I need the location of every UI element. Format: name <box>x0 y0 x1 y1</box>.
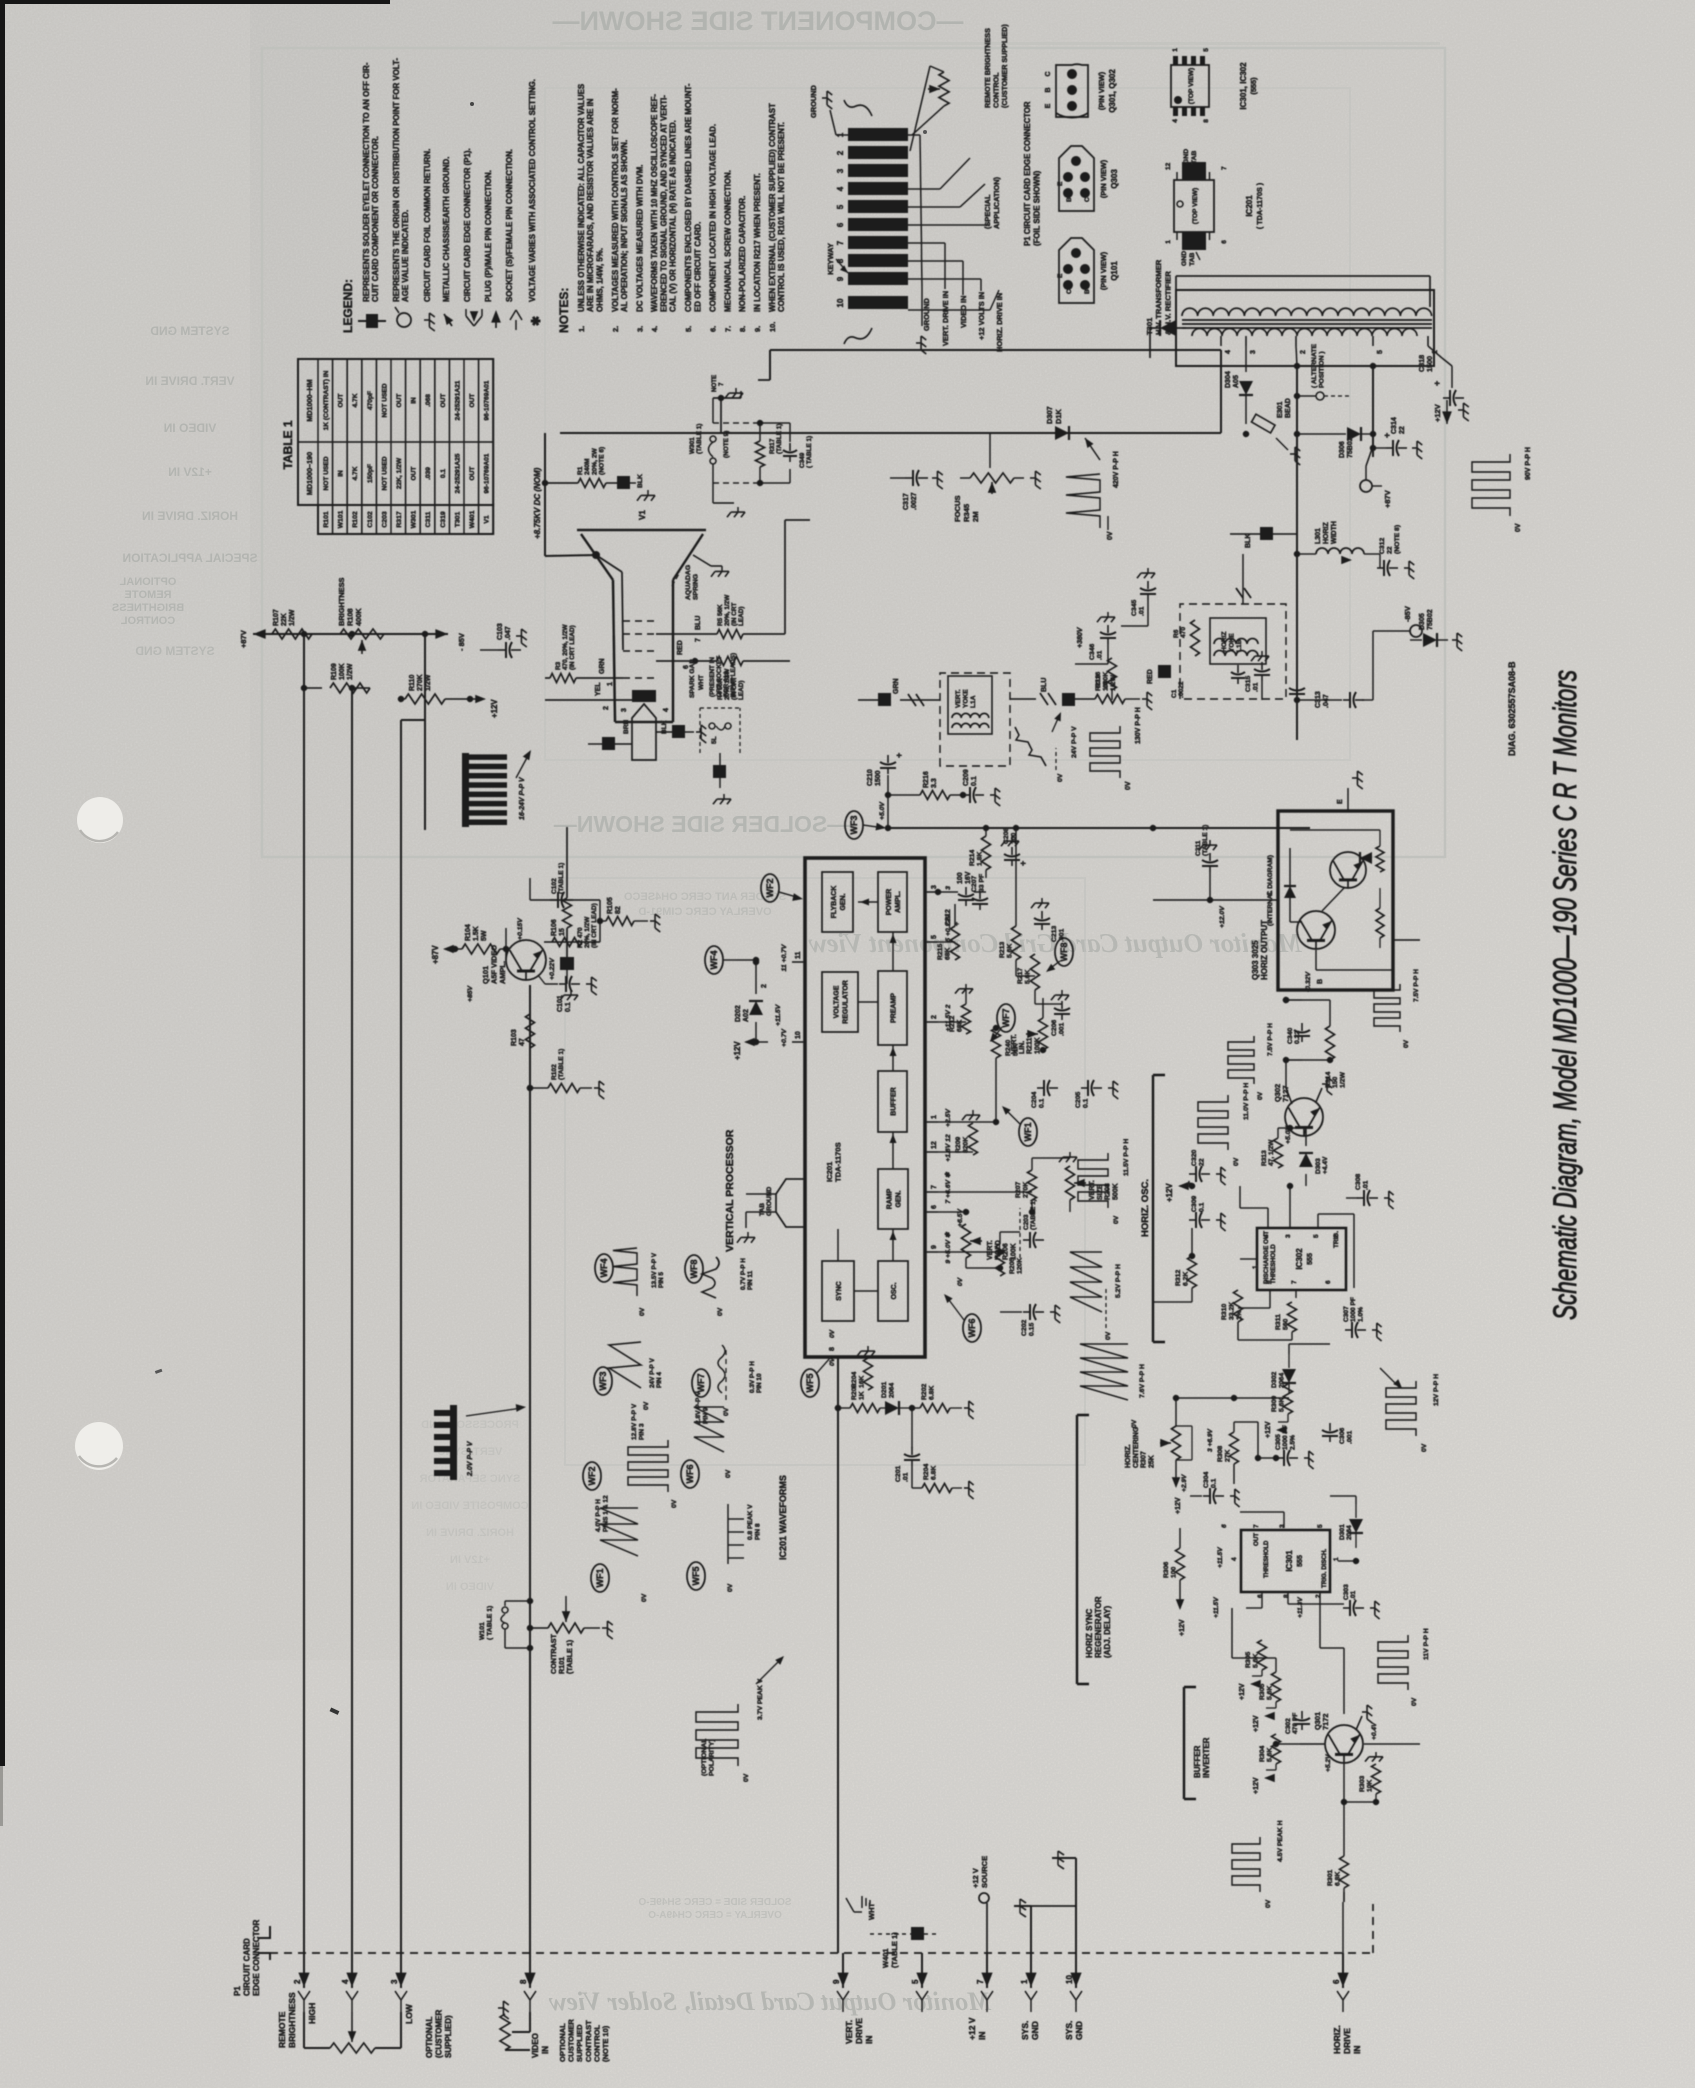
svg-text:4: 4 <box>1172 119 1179 123</box>
svg-text:0V: 0V <box>957 1276 964 1286</box>
svg-text:GROUND: GROUND <box>766 1186 773 1216</box>
svg-text:R317: R317 <box>396 511 403 527</box>
svg-text:8: 8 <box>1203 119 1210 123</box>
svg-text:AL OPERATION; INPUT SIGNALS AS: AL OPERATION; INPUT SIGNALS AS SHOWN. <box>620 140 629 312</box>
svg-text:5: 5 <box>1317 1524 1324 1528</box>
svg-text:C314: C314 <box>1391 417 1398 434</box>
svg-text:W401: W401 <box>881 1948 890 1968</box>
svg-text:SPECIAL APPLICATION: SPECIAL APPLICATION <box>122 551 257 565</box>
svg-text:PLUG (P)/MALE PIN CONNECTION.: PLUG (P)/MALE PIN CONNECTION. <box>484 170 493 302</box>
svg-text:5.6K: 5.6K <box>1024 970 1031 984</box>
svg-text:5: 5 <box>1377 350 1384 354</box>
svg-text:15: 15 <box>559 928 566 936</box>
svg-text:.0027: .0027 <box>911 492 918 510</box>
svg-text:REGULATOR: REGULATOR <box>842 980 849 1024</box>
svg-text:0V: 0V <box>639 1307 646 1316</box>
svg-text:(TABLE 1): (TABLE 1) <box>558 1049 565 1080</box>
svg-text:L301: L301 <box>1315 528 1322 544</box>
svg-text:0V: 0V <box>671 1499 678 1508</box>
svg-text:D304: D304 <box>1225 371 1232 388</box>
svg-text:W101: W101 <box>479 1622 486 1640</box>
svg-text:1.5K: 1.5K <box>473 926 480 941</box>
svg-text:10: 10 <box>795 1031 802 1039</box>
svg-text:WF6: WF6 <box>967 1319 977 1338</box>
svg-text:C206: C206 <box>1051 1020 1058 1036</box>
svg-text:MECHANICAL SCREW CONNECTION.: MECHANICAL SCREW CONNECTION. <box>723 170 732 312</box>
svg-text:1.: 1. <box>577 326 586 332</box>
svg-text:GND: GND <box>1074 2021 1084 2040</box>
svg-text:0.1: 0.1 <box>565 1002 572 1012</box>
svg-text:PIN 11: PIN 11 <box>747 1270 754 1290</box>
svg-text:BLK: BLK <box>637 474 644 488</box>
svg-text:E: E <box>1057 181 1064 186</box>
svg-text:R1: R1 <box>577 466 584 475</box>
svg-text:IN: IN <box>1352 2046 1362 2055</box>
svg-text:+85V: +85V <box>467 984 474 1002</box>
svg-text:(CUSTOMER SUPPLIED): (CUSTOMER SUPPLIED) <box>1000 24 1009 108</box>
svg-text:2: 2 <box>931 1015 938 1019</box>
svg-text:0V: 0V <box>743 1773 750 1782</box>
svg-text:WHT: WHT <box>867 1903 876 1920</box>
svg-text:C205: C205 <box>1075 1092 1082 1108</box>
svg-text:GND: GND <box>1030 2021 1040 2040</box>
svg-text:90V P-P H: 90V P-P H <box>1525 447 1532 480</box>
svg-text:150: 150 <box>1332 1076 1339 1088</box>
svg-text:CENTERING: CENTERING <box>1133 1426 1140 1468</box>
svg-text:5W: 5W <box>481 930 488 941</box>
svg-text:+: + <box>1018 861 1028 866</box>
svg-text:0.15: 0.15 <box>1028 1323 1035 1336</box>
svg-text:11.0V P-P H: 11.0V P-P H <box>1243 1083 1250 1120</box>
svg-text:OUT: OUT <box>469 394 476 408</box>
svg-text:BRIGHTNESS: BRIGHTNESS <box>112 602 184 614</box>
svg-text:B: B <box>1066 197 1073 202</box>
svg-text:27K: 27K <box>1224 1449 1231 1462</box>
svg-text:R308: R308 <box>1217 1446 1224 1462</box>
svg-text:+12V: +12V <box>1175 1497 1182 1514</box>
svg-text:120K: 120K <box>1016 1258 1023 1274</box>
svg-text:500K: 500K <box>1112 1183 1119 1200</box>
svg-text:22: 22 <box>1198 1158 1205 1166</box>
svg-text:8: 8 <box>1283 1594 1290 1598</box>
svg-text:10: 10 <box>1065 1975 1074 1984</box>
svg-text:SOCKET (S)/FEMALE PIN CONNECTI: SOCKET (S)/FEMALE PIN CONNECTION. <box>505 149 514 302</box>
svg-text:0.7V P-P H: 0.7V P-P H <box>740 1258 747 1290</box>
svg-text:10: 10 <box>836 298 845 307</box>
svg-text:0V: 0V <box>717 1307 724 1316</box>
svg-text:AQUADAG: AQUADAG <box>685 565 692 600</box>
svg-text:2064: 2064 <box>1278 1373 1285 1388</box>
svg-text:GND: GND <box>1181 251 1188 266</box>
svg-text:1: 1 <box>607 682 614 686</box>
svg-text:THRESHOLD: THRESHOLD <box>1270 1244 1277 1284</box>
svg-text:12.8V P-P V: 12.8V P-P V <box>631 1403 638 1440</box>
svg-text:TDA-1170S: TDA-1170S <box>834 1142 843 1182</box>
svg-text:51K: 51K <box>1012 1043 1019 1056</box>
svg-text:Q303 3025: Q303 3025 <box>1251 940 1260 980</box>
svg-text:96-10769A01: 96-10769A01 <box>484 380 491 420</box>
svg-text:+12V: +12V <box>1433 404 1442 422</box>
svg-text:+12V IN: +12V IN <box>168 465 212 479</box>
svg-text:+0.22V: +0.22V <box>549 957 556 980</box>
svg-text:NOTE: NOTE <box>711 375 718 392</box>
svg-text:R313: R313 <box>1261 1150 1268 1166</box>
svg-text:C: C <box>1066 289 1073 294</box>
svg-text:+11.3V: +11.3V <box>1297 1597 1304 1618</box>
svg-text:8: 8 <box>519 1979 528 1984</box>
svg-text:HORIZ: HORIZ <box>1221 631 1228 652</box>
svg-text:+12 V: +12 V <box>967 2017 977 2040</box>
svg-text:R101: R101 <box>323 511 330 527</box>
svg-text:IC301, IC302: IC301, IC302 <box>1239 62 1248 110</box>
svg-text:1: 1 <box>1172 48 1179 52</box>
svg-text:CIRCUIT CARD FOIL COMMON RETUR: CIRCUIT CARD FOIL COMMON RETURN. <box>423 149 432 302</box>
svg-text:2: 2 <box>1333 1234 1340 1238</box>
svg-text:Q301, Q302: Q301, Q302 <box>1108 69 1117 113</box>
svg-text:D202: D202 <box>735 1005 742 1022</box>
svg-text:+0.4V: +0.4V <box>1371 1722 1378 1740</box>
svg-text:BUFFER: BUFFER <box>1193 1745 1202 1778</box>
svg-text:E: E <box>1045 103 1052 108</box>
svg-text:C312: C312 <box>1379 538 1386 554</box>
svg-text:+12 VOLTS IN: +12 VOLTS IN <box>977 292 986 340</box>
svg-text:33 PF: 33 PF <box>978 874 985 892</box>
svg-text:PINS 1 & 12: PINS 1 & 12 <box>602 1495 609 1532</box>
svg-text:GROUND: GROUND <box>922 297 931 331</box>
svg-text:IN: IN <box>411 397 418 404</box>
svg-text:7: 7 <box>1221 166 1228 170</box>
svg-text:16K: 16K <box>858 1375 865 1388</box>
svg-text:C317: C317 <box>903 493 910 510</box>
svg-text:AMPL.: AMPL. <box>895 891 902 913</box>
svg-text:0V: 0V <box>1107 531 1114 540</box>
svg-text:C306: C306 <box>1339 1428 1346 1444</box>
svg-text:3: 3 <box>1279 1524 1286 1528</box>
svg-text:1/2W: 1/2W <box>289 609 296 626</box>
svg-text:(OPTIONAL: (OPTIONAL <box>701 1739 708 1776</box>
svg-text:16-24V P-P V: 16-24V P-P V <box>519 776 526 820</box>
svg-text:UNLESS OTHERWISE INDICATED: AL: UNLESS OTHERWISE INDICATED: ALL CAPACITO… <box>577 84 586 312</box>
svg-text:7.6V P-P H: 7.6V P-P H <box>1139 1364 1146 1398</box>
svg-text:OPTIONAL: OPTIONAL <box>425 2017 434 2058</box>
svg-text:6: 6 <box>1257 1594 1264 1598</box>
svg-text:C102: C102 <box>551 878 558 894</box>
svg-text:0.1: 0.1 <box>1198 1202 1205 1212</box>
svg-text:E301: E301 <box>1277 402 1284 418</box>
svg-text:BLU: BLU <box>1041 678 1048 692</box>
svg-text:9: 9 <box>836 276 845 281</box>
svg-text:.001: .001 <box>1058 1023 1065 1036</box>
svg-text:BEAD: BEAD <box>1285 398 1292 418</box>
svg-text:2: 2 <box>1315 1594 1322 1598</box>
svg-text:(TOP VIEW): (TOP VIEW) <box>1192 188 1199 224</box>
svg-text:D307: D307 <box>1045 406 1054 424</box>
svg-text:CIRCUIT CARD EDGE CONNECTOR (P: CIRCUIT CARD EDGE CONNECTOR (P1). <box>463 148 472 302</box>
svg-text:C309: C309 <box>1191 1196 1198 1212</box>
svg-text:6: 6 <box>836 222 845 227</box>
svg-text:WF3: WF3 <box>598 1372 608 1391</box>
svg-text:+2.9V: +2.9V <box>1181 1474 1188 1492</box>
svg-text:0.1: 0.1 <box>1038 1098 1045 1108</box>
svg-text:2.0V P-P V: 2.0V P-P V <box>467 1440 474 1477</box>
svg-text:VERT.: VERT. <box>987 1240 994 1260</box>
svg-text:Schematic Diagram, Model MD100: Schematic Diagram, Model MD1000—190 Seri… <box>1547 670 1583 1320</box>
svg-text:2: 2 <box>836 150 845 155</box>
svg-text:400K: 400K <box>354 608 363 626</box>
svg-text:47: 47 <box>519 1038 526 1046</box>
svg-text:5.6K: 5.6K <box>1278 1398 1285 1412</box>
svg-text:GRN: GRN <box>893 678 900 694</box>
svg-text:Monitor Output Card Detail, So: Monitor Output Card Detail, Solder View <box>548 1987 992 2016</box>
svg-text:68K: 68K <box>944 947 951 960</box>
svg-text:R103: R103 <box>511 1029 518 1046</box>
svg-text:R240: R240 <box>1005 1040 1012 1056</box>
svg-text:METALLIC CHASSIS/EARTH GROUND.: METALLIC CHASSIS/EARTH GROUND. <box>442 157 451 302</box>
svg-text:WF1: WF1 <box>595 1569 605 1588</box>
svg-text:5L: 5L <box>711 736 718 744</box>
svg-text:WHT: WHT <box>698 675 705 690</box>
svg-text:W101: W101 <box>338 510 345 528</box>
svg-text:1.8K: 1.8K <box>976 852 983 866</box>
svg-text:VERT. DRIVE IN: VERT. DRIVE IN <box>145 374 234 388</box>
svg-text:OUT: OUT <box>440 394 447 408</box>
svg-text:CONTROL: CONTROL <box>121 615 176 627</box>
svg-text:1500: 1500 <box>1425 356 1434 372</box>
svg-text:2064: 2064 <box>888 1383 895 1398</box>
svg-text:SYS.: SYS. <box>1020 2021 1030 2040</box>
svg-text:47, 1/2W: 47, 1/2W <box>1268 1139 1275 1166</box>
svg-text:22: 22 <box>1387 546 1394 554</box>
svg-text:POLARITY): POLARITY) <box>709 1739 716 1776</box>
svg-text:1000 PF: 1000 PF <box>1350 1297 1357 1322</box>
svg-text:22K, 1/2W: 22K, 1/2W <box>396 457 403 489</box>
svg-text:9.: 9. <box>753 326 762 332</box>
svg-text:4: 4 <box>663 708 670 712</box>
svg-text:R207: R207 <box>1015 1182 1022 1198</box>
svg-text:4.5V PEAK H: 4.5V PEAK H <box>1277 1820 1284 1862</box>
svg-text:PIN 8: PIN 8 <box>754 1523 761 1540</box>
svg-text:R102: R102 <box>551 1064 558 1080</box>
svg-text:(TOP VIEW): (TOP VIEW) <box>1188 68 1195 104</box>
svg-text:V1: V1 <box>484 515 491 524</box>
svg-text:270K: 270K <box>417 674 424 691</box>
svg-text:C315: C315 <box>1245 676 1252 692</box>
svg-text:1: 1 <box>931 1115 938 1119</box>
svg-text:680K: 680K <box>1102 672 1109 688</box>
svg-text:+12V: +12V <box>1239 1683 1246 1700</box>
svg-text:.01: .01 <box>1362 1180 1369 1190</box>
svg-text:7.: 7. <box>723 326 732 332</box>
svg-text:L1B: L1B <box>1236 639 1243 652</box>
svg-text:(PRESENT IN: (PRESENT IN <box>709 657 716 697</box>
svg-text:REPRESENTS THE ORIGIN OR DISTR: REPRESENTS THE ORIGIN OR DISTRIBUTION PO… <box>392 58 401 302</box>
svg-text:1.0%: 1.0% <box>1357 1307 1364 1322</box>
svg-text:(NOTE 8): (NOTE 8) <box>1394 525 1401 554</box>
svg-text:+: + <box>894 753 904 758</box>
svg-text:C349: C349 <box>799 452 806 468</box>
svg-text:VIDEO IN: VIDEO IN <box>164 421 217 435</box>
svg-text:0V: 0V <box>829 1329 836 1338</box>
svg-text:5: 5 <box>931 935 938 939</box>
svg-text:TABLE 1: TABLE 1 <box>281 420 295 469</box>
svg-text:100: 100 <box>957 872 964 884</box>
svg-text:11 +0.7V: 11 +0.7V <box>781 943 788 971</box>
svg-text:(IN CRT LEAD): (IN CRT LEAD) <box>569 625 576 670</box>
svg-text:YEL: YEL <box>595 682 602 696</box>
svg-text:(IN CRT: (IN CRT <box>731 602 738 626</box>
svg-text:12: 12 <box>931 1141 938 1149</box>
svg-text:13.5V P-P V: 13.5V P-P V <box>651 1252 658 1288</box>
svg-text:0V: 0V <box>1233 1157 1240 1166</box>
svg-text:HORIZ: HORIZ <box>1323 522 1330 545</box>
svg-text:0V: 0V <box>1105 1331 1112 1340</box>
svg-text:C201: C201 <box>895 1466 902 1482</box>
svg-text:.01: .01 <box>902 1472 909 1482</box>
svg-text:555: 555 <box>1297 1555 1304 1567</box>
svg-text:WF5: WF5 <box>691 1567 701 1586</box>
svg-text:C212: C212 <box>945 909 952 926</box>
svg-text:AMPL.: AMPL. <box>498 961 507 984</box>
svg-text:PIN 5: PIN 5 <box>658 1272 665 1288</box>
svg-text:5: 5 <box>1203 48 1210 52</box>
svg-text:OUT: OUT <box>396 394 403 408</box>
svg-text:VERTICAL PROCESSOR: VERTICAL PROCESSOR <box>724 1129 736 1252</box>
svg-text:25K: 25K <box>1148 1455 1155 1468</box>
svg-text:0V: 0V <box>1411 1697 1418 1706</box>
svg-text:R310: R310 <box>1221 1304 1228 1320</box>
svg-text:IN LOCATION R217 WHEN PRESENT.: IN LOCATION R217 WHEN PRESENT. <box>753 173 762 312</box>
svg-text:SOLDER SIDE = CERC SH49E-O: SOLDER SIDE = CERC SH49E-O <box>638 1897 791 1908</box>
svg-text:SYSTEM GND: SYSTEM GND <box>135 644 215 658</box>
svg-text:DC VOLTAGES MEASURED WITH DVM.: DC VOLTAGES MEASURED WITH DVM. <box>635 165 644 312</box>
svg-text:6.8K: 6.8K <box>930 1466 937 1480</box>
svg-text:R305: R305 <box>1245 1652 1252 1668</box>
svg-text:WF2: WF2 <box>587 1467 597 1486</box>
svg-text:4.: 4. <box>650 326 659 332</box>
svg-text:R211: R211 <box>1027 1038 1034 1054</box>
svg-text:3.: 3. <box>635 326 644 332</box>
svg-text:D1K: D1K <box>1054 409 1063 424</box>
svg-text:RED: RED <box>677 640 684 655</box>
svg-text:PIN 10: PIN 10 <box>756 1373 763 1393</box>
svg-text:+12.0V: +12.0V <box>1219 905 1226 928</box>
svg-text:VOLTAGES MEASURED WITH CONTROL: VOLTAGES MEASURED WITH CONTROLS SET FOR … <box>611 88 620 312</box>
svg-text:WIDTH: WIDTH <box>1331 521 1338 544</box>
svg-text:REMOTE: REMOTE <box>277 2011 287 2048</box>
svg-text:9: 9 <box>832 1979 841 1984</box>
svg-text:2M: 2M <box>971 511 980 522</box>
svg-text:C304: C304 <box>1203 1472 1210 1488</box>
svg-text:GEN.: GEN. <box>895 1190 902 1207</box>
svg-text:+12V: +12V <box>490 699 499 718</box>
svg-text:.047: .047 <box>505 626 512 640</box>
svg-text:82: 82 <box>615 906 622 914</box>
svg-text:SYS.: SYS. <box>1064 2021 1074 2040</box>
svg-text:T301: T301 <box>454 512 461 528</box>
svg-text:ED OFF CIRCUIT CARD.: ED OFF CIRCUIT CARD. <box>693 222 702 312</box>
svg-text:HORIZ.: HORIZ. <box>1332 2025 1342 2054</box>
svg-text:VIDEO: VIDEO <box>531 2033 540 2058</box>
svg-text:5.6K: 5.6K <box>1266 1748 1273 1762</box>
svg-text:R306: R306 <box>1163 1562 1170 1578</box>
svg-text:R317: R317 <box>769 438 776 454</box>
svg-text:+12 V: +12 V <box>971 1868 980 1888</box>
svg-text:E: E <box>1057 273 1064 278</box>
svg-text:( TABLE 1): ( TABLE 1) <box>486 1606 493 1640</box>
svg-text:3.7V PEAK V: 3.7V PEAK V <box>757 1678 764 1720</box>
svg-text:LOW: LOW <box>404 2003 414 2024</box>
svg-text:(TABLE 1): (TABLE 1) <box>565 1639 574 1674</box>
svg-text:IN: IN <box>338 470 345 477</box>
svg-text:SYNC: SYNC <box>836 1281 843 1300</box>
svg-text:C311: C311 <box>425 511 432 527</box>
svg-text:R214: R214 <box>969 850 976 866</box>
svg-text:2: 2 <box>293 1979 302 1984</box>
svg-text:7: 7 <box>718 382 725 386</box>
svg-text:3: 3 <box>1285 1234 1292 1238</box>
svg-text:WF8: WF8 <box>689 1260 699 1279</box>
svg-text:C345: C345 <box>1131 600 1138 616</box>
svg-text:+4.4V: +4.4V <box>1322 1156 1329 1174</box>
svg-text:ERENCED TO SIGNAL GROUND, AND: ERENCED TO SIGNAL GROUND, AND SYNCED AT … <box>659 95 668 312</box>
svg-text:130V P-P H: 130V P-P H <box>1135 707 1142 744</box>
svg-text:7: 7 <box>836 240 845 245</box>
svg-text:RAMP: RAMP <box>887 1188 894 1209</box>
svg-text:470pF: 470pF <box>367 391 374 410</box>
svg-text:FOCUS: FOCUS <box>953 495 962 522</box>
svg-text:(NOTE 10): (NOTE 10) <box>601 2025 610 2062</box>
svg-text:C303: C303 <box>1343 1584 1350 1600</box>
svg-text:MD1000–190: MD1000–190 <box>305 452 314 495</box>
svg-text:22K: 22K <box>281 613 288 626</box>
svg-text:12V P-P H: 12V P-P H <box>1433 1374 1440 1406</box>
svg-text:( ALTERNATE: ( ALTERNATE <box>1311 343 1318 388</box>
svg-text:24V P-P V: 24V P-P V <box>649 1358 656 1388</box>
svg-text:TRIG.: TRIG. <box>1333 1231 1340 1248</box>
svg-text:VOLTAGE: VOLTAGE <box>834 985 841 1018</box>
svg-text:(TABLE 1): (TABLE 1) <box>1202 825 1209 856</box>
svg-text:+5.2V: +5.2V <box>1325 1754 1332 1772</box>
svg-text:+: + <box>1432 381 1442 386</box>
svg-text:+0.7V: +0.7V <box>781 1028 788 1047</box>
svg-text:OSC.: OSC. <box>891 1282 898 1299</box>
svg-text:5.2V P-P H: 5.2V P-P H <box>1115 1264 1122 1298</box>
svg-text:0V: 0V <box>725 1469 732 1478</box>
svg-text:WF5: WF5 <box>805 1374 815 1393</box>
svg-text:0.1: 0.1 <box>1210 1478 1217 1488</box>
svg-text:C103: C103 <box>497 623 504 640</box>
svg-text:4.0V P-P H: 4.0V P-P H <box>595 1499 602 1532</box>
svg-text:NOTES:: NOTES: <box>557 288 571 333</box>
svg-text:OPTIONAL: OPTIONAL <box>119 576 176 588</box>
svg-text:R109: R109 <box>331 663 338 680</box>
svg-text:+11.5V: +11.5V <box>1217 1547 1224 1568</box>
svg-text:R345: R345 <box>962 503 971 522</box>
svg-text:4: 4 <box>1231 1557 1238 1561</box>
svg-text:OUT: OUT <box>338 394 345 408</box>
svg-text:7: 7 <box>695 638 702 642</box>
svg-text:0V: 0V <box>727 1583 734 1592</box>
svg-text:6.2K: 6.2K <box>1182 1272 1189 1286</box>
svg-text:C207: C207 <box>971 876 978 892</box>
svg-text:P1: P1 <box>233 1986 242 1996</box>
svg-text:5.6K: 5.6K <box>1252 1654 1259 1668</box>
svg-text:R6: R6 <box>1173 629 1180 638</box>
svg-text:INPUT LEADS): INPUT LEADS) <box>730 653 737 697</box>
svg-text:VERT.: VERT. <box>844 2020 854 2044</box>
svg-text:3: 3 <box>931 885 938 889</box>
svg-text:C102: C102 <box>367 511 374 527</box>
